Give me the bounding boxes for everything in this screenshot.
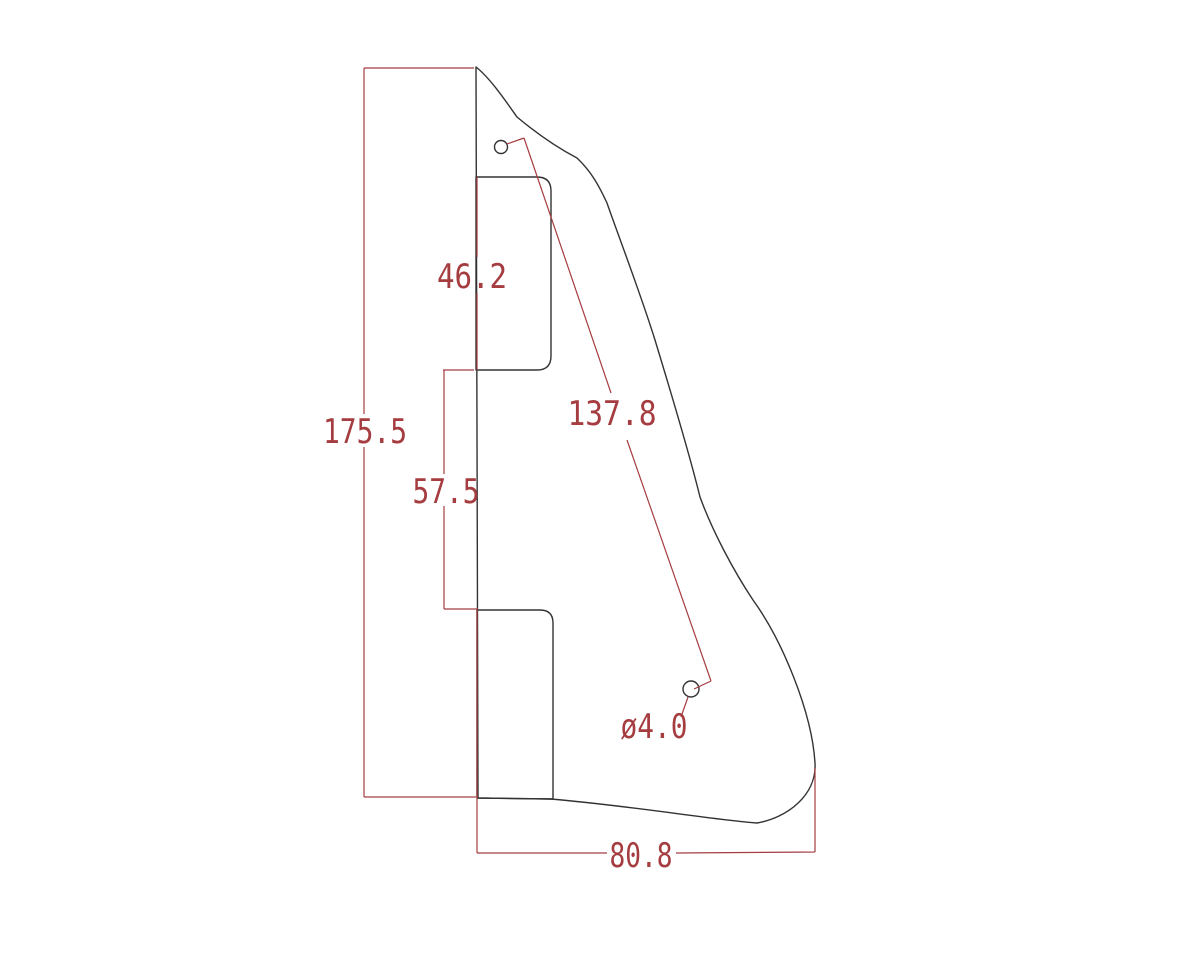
dim-edge-between-cutouts-label: 57.5 [413,472,480,512]
dim-hole-spacing-label: 137.8 [568,394,657,434]
screw-hole-bottom [683,681,699,697]
dim-upper-cutout-height-label: 46.2 [437,257,507,297]
cad-drawing: 175.5 46.2 57.5 137.8 ø4.0 80.8 [0,0,1200,960]
dim-hole-diameter-label: ø4.0 [621,707,688,747]
pickup-cutout-lower [477,610,553,799]
screw-hole-top [495,141,508,154]
drawing-canvas: 175.5 46.2 57.5 137.8 ø4.0 80.8 [0,0,1200,960]
dim-bottom-width-label: 80.8 [610,836,673,876]
dimension-labels-group: 175.5 46.2 57.5 137.8 ø4.0 80.8 [323,257,688,876]
dim-total-height-label: 175.5 [323,412,407,452]
dimension-lines-group [364,68,815,853]
